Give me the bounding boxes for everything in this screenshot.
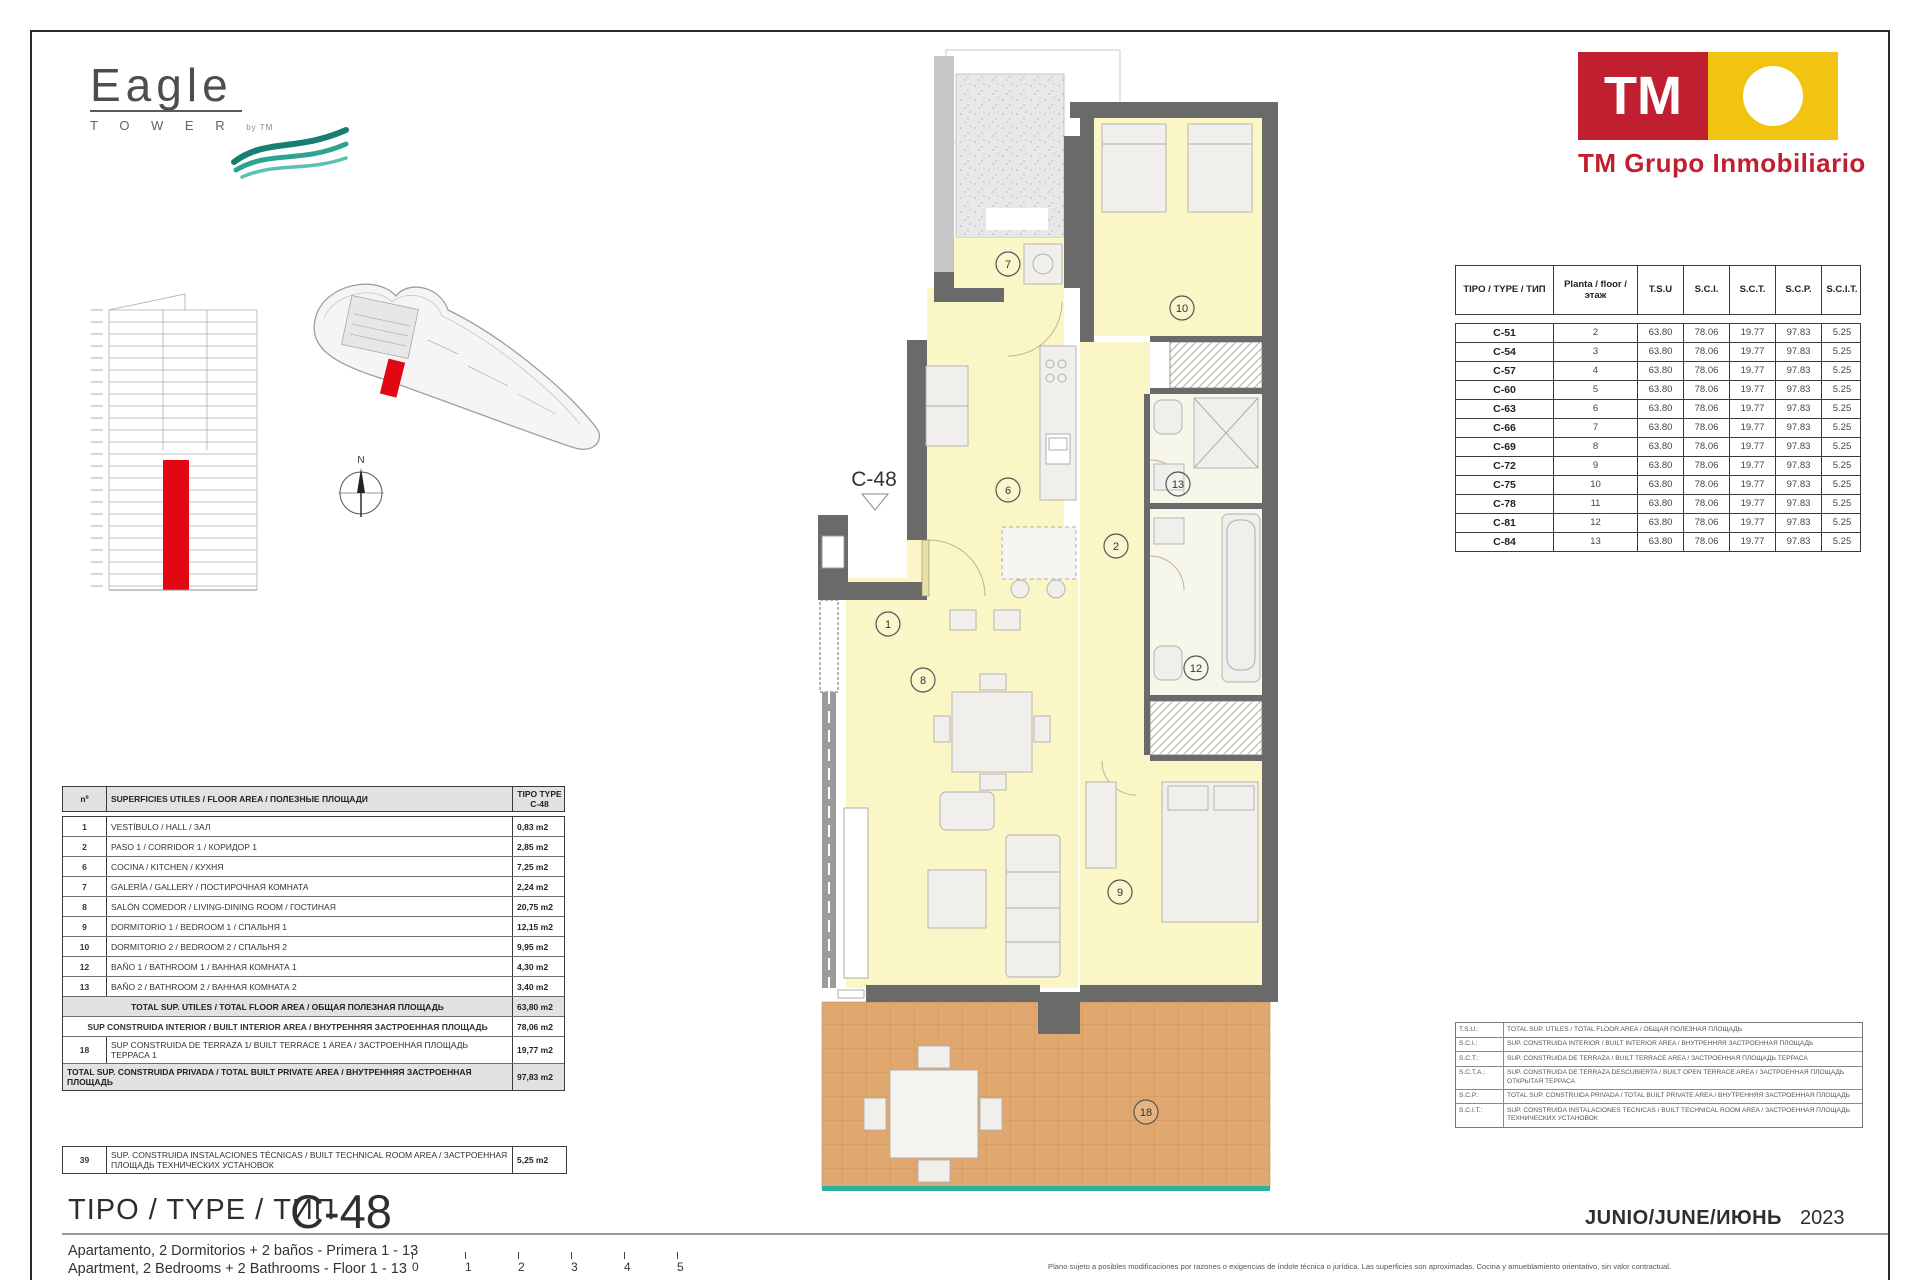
eagle-waves-icon [230,122,350,180]
scale-bar: 012345 [412,1252,730,1274]
upper-terrace-label-box [986,208,1048,230]
type-table-body: C-51263.8078.0619.7797.835.25C-54363.807… [1455,323,1861,552]
type-table-row: C-72963.8078.0619.7797.835.25 [1456,457,1860,476]
area-table-row: 12BAÑO 1 / BATHROOM 1 / ВАННАЯ КОМНАТА 1… [63,957,564,977]
scale-mark: 4 [624,1252,677,1274]
date-label: JUNIO/JUNE/ИЮНЬ [1585,1207,1782,1230]
year-label: 2023 [1800,1207,1845,1230]
room-marker-8: 8 [911,668,935,692]
legend-row: S.C.T.:SUP. CONSTRUIDA DE TERRAZA / BUIL… [1456,1052,1862,1067]
tm-logo-circle [1743,66,1803,126]
type-table-header-cell: TIPO / TYPE / ТИП [1456,266,1554,314]
tm-logo-red-square: TM [1578,52,1708,140]
legend-row: S.C.T.A.:SUP. CONSTRUIDA DE TERRAZA DESC… [1456,1067,1862,1090]
area-table-header: nº SUPERFICIES UTILES / FLOOR AREA / ПОЛ… [62,786,565,812]
area-table-row: 2PASO 1 / CORRIDOR 1 / КОРИДОР 12,85 m2 [63,837,564,857]
frame-right [1888,30,1890,1280]
svg-text:8: 8 [920,675,926,687]
compass-rose: N [330,452,392,520]
plan-sheet: Eagle T O W E R by TM TM TM Grupo Inmobi… [0,0,1920,1280]
area-table-row: SUP CONSTRUIDA INTERIOR / BUILT INTERIOR… [63,1017,564,1037]
area-table-row: 8SALÓN COMEDOR / LIVING-DINING ROOM / ГО… [63,897,564,917]
scale-mark: 1 [465,1252,518,1274]
area-table-row: 39SUP. CONSTRUIDA INSTALACIONES TÉCNICAS… [63,1147,566,1173]
type-table-row: C-60563.8078.0619.7797.835.25 [1456,381,1860,400]
svg-text:13: 13 [1172,479,1184,491]
glass-balustrade [822,1186,1270,1191]
entry-door-leaf [922,540,929,596]
svg-text:6: 6 [1005,485,1011,497]
svg-text:2: 2 [1113,541,1119,553]
legend-row: S.C.I.:SUP. CONSTRUIDA INTERIOR / BUILT … [1456,1038,1862,1053]
type-table-header-cell: S.C.P. [1776,266,1822,314]
type-floor-table: TIPO / TYPE / ТИПPlanta / floor / этажT.… [1455,265,1861,552]
compass-north-label: N [357,455,364,466]
sliding-door-leaf [844,808,868,978]
type-table-header-cell: S.C.T. [1730,266,1776,314]
type-table-row: C-69863.8078.0619.7797.835.25 [1456,438,1860,457]
type-table-row: C-811263.8078.0619.7797.835.25 [1456,514,1860,533]
type-table-header-cell: T.S.U [1638,266,1684,314]
type-table-header-cell: Planta / floor / этаж [1554,266,1638,314]
eagle-logo-word: Eagle [90,62,350,108]
area-col-title: SUPERFICIES UTILES / FLOOR AREA / ПОЛЕЗН… [107,787,513,811]
room-marker-13: 13 [1166,472,1190,496]
legal-disclaimer: Plano sujeto a posibles modificaciones p… [1048,1262,1888,1271]
legend-row: S.C.I.T.:SUP. CONSTRUIDA INSTALACIONES T… [1456,1104,1862,1126]
area-table-row: 6COCINA / KITCHEN / КУХНЯ7,25 m2 [63,857,564,877]
tm-logo-yellow-square [1708,52,1838,140]
type-table-row: C-54363.8078.0619.7797.835.25 [1456,343,1860,362]
area-table-row: 7GALERÍA / GALLERY / ПОСТИРОЧНАЯ КОМНАТА… [63,877,564,897]
footer-divider [62,1233,1888,1235]
type-table-row: C-751063.8078.0619.7797.835.25 [1456,476,1860,495]
svg-text:10: 10 [1176,303,1188,315]
wardrobe-bedroom1 [1150,701,1262,755]
frame-left [30,30,32,1280]
eagle-logo-tower: T O W E R [90,118,234,133]
room-marker-12: 12 [1184,656,1208,680]
room-marker-18: 18 [1134,1100,1158,1124]
room-marker-2: 2 [1104,534,1128,558]
area-table-row: 18SUP CONSTRUIDA DE TERRAZA 1/ BUILT TER… [63,1037,564,1064]
wardrobe-bedroom2 [1170,342,1262,388]
apartment-description-es: Apartamento, 2 Dormitorios + 2 baños - P… [68,1242,418,1260]
building-elevation-diagram [85,290,270,605]
utility-box [822,536,844,568]
type-table-header: TIPO / TYPE / ТИПPlanta / floor / этажT.… [1455,265,1861,315]
floor-plan: C-48 71061321812918 [650,40,1310,1200]
area-table-row: 9DORMITORIO 1 / BEDROOM 1 / СПАЛЬНЯ 112,… [63,917,564,937]
svg-text:7: 7 [1005,259,1011,271]
legend-row: T.S.U.:TOTAL SUP. UTILES / TOTAL FLOOR A… [1456,1023,1862,1038]
terrace-door-sill [838,990,864,998]
type-table-row: C-57463.8078.0619.7797.835.25 [1456,362,1860,381]
elevation-unit-highlight [163,460,189,590]
scale-mark: 3 [571,1252,624,1274]
legend-row: S.C.P.:TOTAL SUP. CONSTRUIDA PRIVADA / T… [1456,1090,1862,1105]
area-table-row: TOTAL SUP. CONSTRUIDA PRIVADA / TOTAL BU… [63,1064,564,1090]
party-wall-hatched [820,600,838,692]
svg-text:18: 18 [1140,1107,1152,1119]
area-table-body: 1VESTÍBULO / HALL / ЗАЛ0,83 m22PASO 1 / … [62,816,565,1091]
plan-unit-label: C-48 [851,468,897,491]
apartment-description-en: Apartment, 2 Bedrooms + 2 Bathrooms - Fl… [68,1260,418,1278]
type-table-header-cell: S.C.I. [1684,266,1730,314]
svg-text:1: 1 [885,619,891,631]
type-table-row: C-63663.8078.0619.7797.835.25 [1456,400,1860,419]
area-col-type-code: C-48 [530,799,548,809]
area-table-row: 1VESTÍBULO / HALL / ЗАЛ0,83 m2 [63,817,564,837]
parapet-wall [934,56,954,272]
technical-room-row: 39SUP. CONSTRUIDA INSTALACIONES TÉCNICAS… [62,1146,567,1174]
abbreviation-legend: T.S.U.:TOTAL SUP. UTILES / TOTAL FLOOR A… [1455,1022,1863,1128]
svg-text:9: 9 [1117,887,1123,899]
type-table-row: C-66763.8078.0619.7797.835.25 [1456,419,1860,438]
room-marker-7: 7 [996,252,1020,276]
room-marker-9: 9 [1108,880,1132,904]
type-table-header-cell: S.C.I.T. [1822,266,1862,314]
tm-logo-caption: TM Grupo Inmobiliario [1578,148,1878,179]
footer-type-code: C-48 [290,1184,392,1239]
tm-grupo-logo: TM TM Grupo Inmobiliario [1578,52,1878,179]
floor-area-table: nº SUPERFICIES UTILES / FLOOR AREA / ПОЛ… [62,786,565,1091]
frame-top [30,30,1890,32]
scale-mark: 0 [412,1252,465,1274]
scale-mark: 2 [518,1252,571,1274]
eagle-tower-logo: Eagle T O W E R by TM [90,62,350,133]
area-table-row: TOTAL SUP. UTILES / TOTAL FLOOR AREA / О… [63,997,564,1017]
type-table-row: C-51263.8078.0619.7797.835.25 [1456,324,1860,343]
area-col-num: nº [63,787,107,811]
type-table-row: C-781163.8078.0619.7797.835.25 [1456,495,1860,514]
type-table-row: C-841363.8078.0619.7797.835.25 [1456,533,1860,551]
apartment-description: Apartamento, 2 Dormitorios + 2 baños - P… [68,1242,418,1278]
area-table-row: 13BAÑO 2 / BATHROOM 2 / ВАННАЯ КОМНАТА 2… [63,977,564,997]
room-marker-1: 1 [876,612,900,636]
room-marker-10: 10 [1170,296,1194,320]
svg-text:12: 12 [1190,663,1202,675]
entry-arrow-icon [862,494,888,510]
area-col-type: TIPO TYPE [517,789,561,799]
scale-mark: 5 [677,1252,730,1274]
room-marker-6: 6 [996,478,1020,502]
area-table-row: 10DORMITORIO 2 / BEDROOM 2 / СПАЛЬНЯ 29,… [63,937,564,957]
